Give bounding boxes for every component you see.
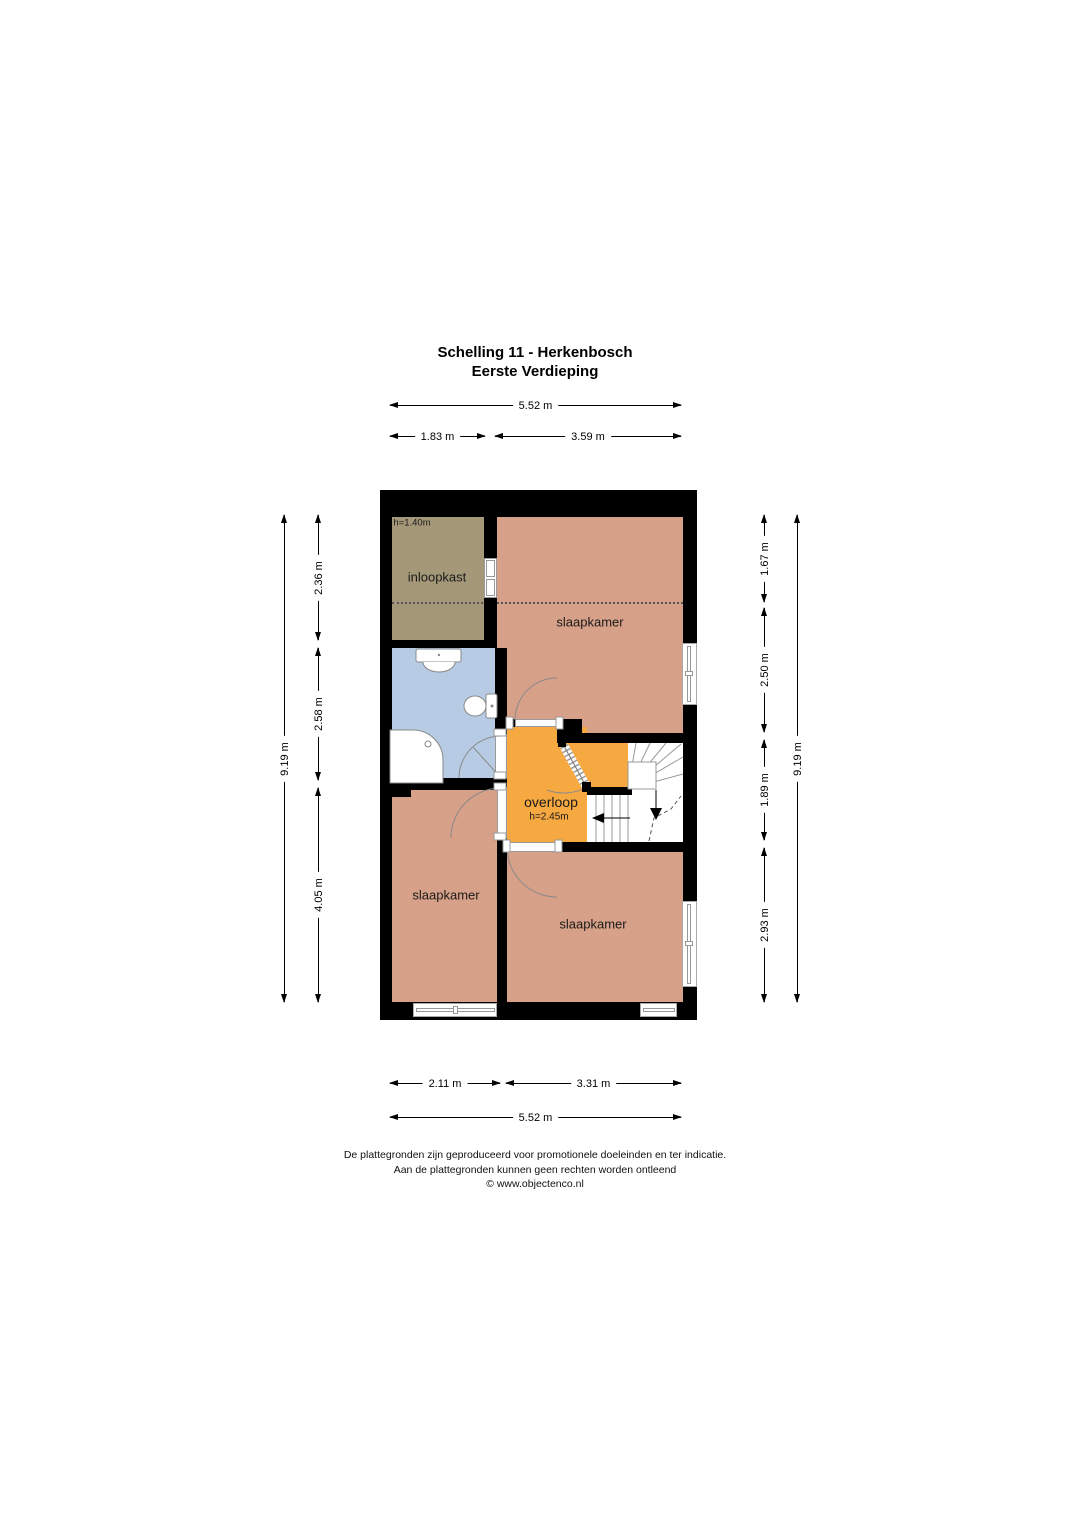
footer-line2: Aan de plattegronden kunnen geen rechten… bbox=[255, 1163, 815, 1178]
dim-top-total: 5.52 m bbox=[390, 405, 681, 406]
dim-bottom-left: 2.11 m bbox=[390, 1083, 500, 1084]
staircase bbox=[596, 743, 683, 842]
page-title: Schelling 11 - Herkenbosch Eerste Verdie… bbox=[275, 344, 795, 382]
toilet bbox=[464, 694, 497, 718]
label-overloop: overloop bbox=[524, 794, 578, 810]
label-overloop-height: h=2.45m bbox=[529, 812, 568, 823]
dim-left-seg3: 4.05 m bbox=[318, 788, 319, 1002]
title-floor: Eerste Verdieping bbox=[275, 363, 795, 382]
dim-left-seg1: 2.36 m bbox=[318, 515, 319, 640]
label-inloopkast-height: h=1.40m bbox=[393, 518, 430, 529]
door-stairs-diagonal bbox=[558, 739, 591, 792]
dim-top-right: 3.59 m bbox=[495, 436, 681, 437]
dim-right-seg2: 2.50 m bbox=[764, 608, 765, 732]
label-slaapkamer-right: slaapkamer bbox=[559, 917, 626, 932]
stair-direction-arrows bbox=[592, 790, 681, 841]
dim-left-seg2: 2.58 m bbox=[318, 648, 319, 780]
shower bbox=[390, 730, 443, 783]
label-slaapkamer-left: slaapkamer bbox=[412, 888, 479, 903]
dim-right-seg1: 1.67 m bbox=[764, 515, 765, 602]
sink bbox=[416, 649, 461, 672]
dim-right-seg4: 2.93 m bbox=[764, 848, 765, 1002]
dim-right-total: 9.19 m bbox=[797, 515, 798, 1002]
footer-copyright: © www.objectenco.nl bbox=[255, 1177, 815, 1192]
dim-top-left: 1.83 m bbox=[390, 436, 485, 437]
title-address: Schelling 11 - Herkenbosch bbox=[275, 344, 795, 363]
dim-bottom-right: 3.31 m bbox=[506, 1083, 681, 1084]
door-jambs bbox=[494, 717, 563, 852]
footer-disclaimer: De plattegronden zijn geproduceerd voor … bbox=[255, 1148, 815, 1192]
dim-bottom-total: 5.52 m bbox=[390, 1117, 681, 1118]
dim-right-seg3: 1.89 m bbox=[764, 740, 765, 840]
footer-line1: De plattegronden zijn geproduceerd voor … bbox=[255, 1148, 815, 1163]
label-slaapkamer-top: slaapkamer bbox=[556, 615, 623, 630]
label-inloopkast: inloopkast bbox=[408, 570, 467, 585]
dim-left-total: 9.19 m bbox=[284, 515, 285, 1002]
floorplan-page: Schelling 11 - Herkenbosch Eerste Verdie… bbox=[0, 0, 1080, 1527]
